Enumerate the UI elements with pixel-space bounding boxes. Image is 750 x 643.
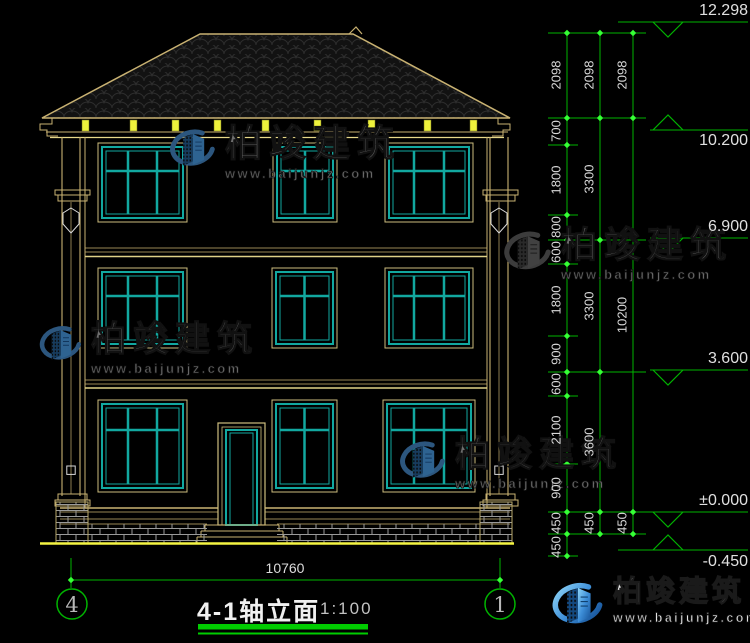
dim-label: 600 (550, 373, 563, 395)
watermark-brand: 柏竣建筑 (91, 322, 259, 357)
baijun-logo-icon (166, 125, 218, 177)
window-ground-middle (272, 400, 337, 492)
watermark-url: www.baijunjz.com (561, 267, 733, 282)
dim-label: 450 (616, 512, 629, 534)
dim-label: 2098 (616, 61, 629, 90)
ridge-ornament (349, 27, 362, 34)
eave-bracket-right (492, 118, 510, 136)
roof-tiles (42, 34, 510, 118)
elevation-label: 6.900 (708, 219, 748, 235)
dim-label: 3300 (583, 292, 596, 321)
footer-url: www.baijunjz.com (613, 611, 750, 625)
watermark-url: www.baijunjz.com (455, 476, 623, 491)
dim-label: 3300 (583, 165, 596, 194)
dim-label: 1800 (550, 286, 563, 315)
baijun-logo-icon (36, 322, 84, 370)
elevation-label: 10.200 (699, 133, 748, 149)
baijun-logo-icon (396, 437, 448, 489)
watermark: 柏竣建筑 www.baijunjz.com (36, 322, 259, 376)
baijun-logo-icon (500, 227, 554, 281)
dim-label: 800 (550, 216, 563, 238)
elevation-datum-lines (618, 22, 748, 550)
eave-bracket-left (40, 118, 58, 136)
dim-label: 900 (550, 343, 563, 365)
elevation-label: 12.298 (699, 3, 748, 19)
axis-number-left: 4 (65, 593, 78, 617)
window-ground-left (98, 400, 187, 492)
watermark: 柏竣建筑 www.baijunjz.com (500, 227, 733, 282)
footer-brand: 柏竣建筑 (613, 578, 750, 607)
elevation-label: 3.600 (708, 351, 748, 367)
watermark: 柏竣建筑 www.baijunjz.com (166, 125, 401, 181)
corner-pier-right (480, 502, 512, 543)
elevation-label: ±0.000 (699, 493, 748, 509)
cad-elevation-sheet: 柏竣建筑 www.baijunjz.com 柏竣建筑 www.baijunjz.… (0, 0, 750, 643)
dim-label: 700 (550, 120, 563, 142)
window-mid-right (385, 268, 473, 348)
dim-label: 3600 (583, 428, 596, 457)
watermark-brand: 柏竣建筑 (225, 125, 401, 162)
dim-label: 2098 (583, 61, 596, 90)
drawing-scale: 1:100 (320, 599, 373, 619)
dim-label: 600 (550, 241, 563, 263)
dim-label: 1800 (550, 166, 563, 195)
window-mid-middle (272, 268, 337, 348)
dim-label: 450 (550, 512, 563, 534)
dim-label: 450 (583, 512, 596, 534)
axis-number-right: 1 (493, 593, 506, 617)
watermark-url: www.baijunjz.com (225, 166, 401, 181)
overall-width-dim: 10760 (266, 560, 305, 576)
dim-label: 900 (550, 477, 563, 499)
corner-pier-left (56, 502, 88, 543)
title-underline-thin (198, 633, 368, 635)
entrance-door (218, 423, 265, 525)
elevation-label: -0.450 (703, 554, 748, 570)
elevation-triangles (653, 22, 683, 550)
baijun-logo-icon (548, 578, 606, 636)
dim-label: 450 (550, 536, 563, 558)
dim-label: 10200 (616, 297, 629, 333)
watermark-brand: 柏竣建筑 (455, 437, 623, 472)
footer-logo: 柏竣建筑 www.baijunjz.com (548, 578, 750, 636)
dim-label: 2098 (550, 61, 563, 90)
watermark-url: www.baijunjz.com (91, 361, 259, 376)
dim-label: 2100 (550, 416, 563, 445)
hipped-roof (42, 27, 510, 118)
door-steps (197, 525, 287, 543)
drawing-title: 4-1轴立面 (197, 592, 320, 628)
